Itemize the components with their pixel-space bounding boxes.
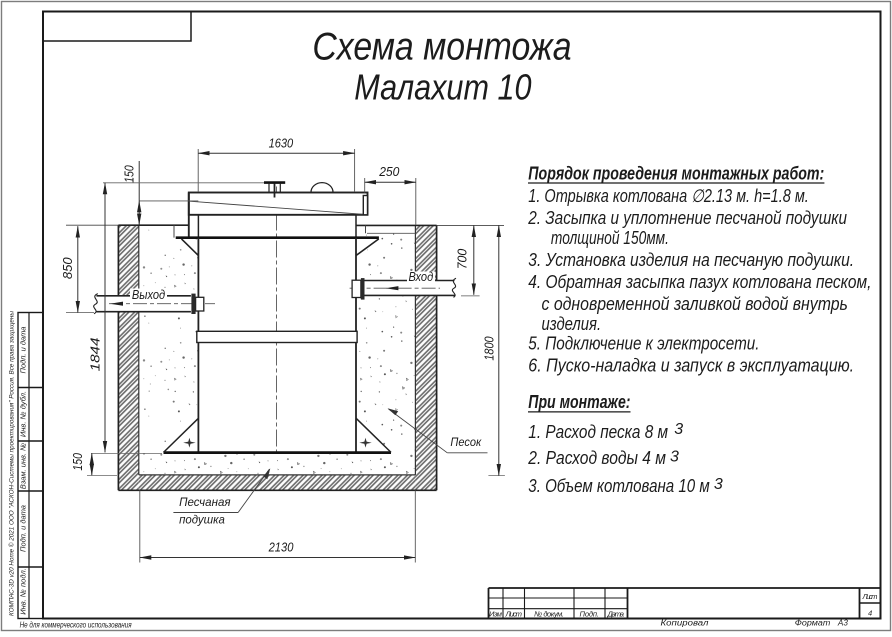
svg-text:5. Подключение к электросети.: 5. Подключение к электросети. (528, 334, 759, 354)
svg-text:6. Пуско-наладка и запуск в эк: 6. Пуско-наладка и запуск в эксплуатацию… (528, 355, 854, 375)
svg-text:Дата: Дата (607, 609, 625, 618)
svg-text:Инв. № подл.: Инв. № подл. (19, 568, 28, 615)
svg-text:Лист: Лист (505, 609, 523, 618)
svg-text:При монтаже:: При монтаже: (528, 392, 630, 412)
svg-text:1. Расход песка 8 м: 1. Расход песка 8 м (528, 422, 668, 442)
svg-text:4. Обратная засыпка пазух котл: 4. Обратная засыпка пазух котлована песк… (528, 272, 871, 292)
svg-text:Малахит 10: Малахит 10 (354, 67, 531, 108)
svg-text:3: 3 (714, 476, 723, 493)
svg-text:Вход: Вход (409, 270, 434, 284)
svg-text:3. Установка изделия на песчан: 3. Установка изделия на песчаную подушки… (528, 250, 854, 270)
svg-text:Песчаная: Песчаная (179, 495, 231, 509)
svg-text:4: 4 (868, 609, 872, 618)
svg-text:подушка: подушка (179, 512, 225, 526)
svg-text:изделия.: изделия. (542, 314, 602, 334)
svg-text:Порядок проведения монтажных р: Порядок проведения монтажных работ: (528, 164, 824, 184)
svg-text:150: 150 (123, 165, 137, 183)
svg-text:№ докум.: № докум. (534, 609, 564, 618)
svg-text:Схема монтожа: Схема монтожа (312, 26, 571, 69)
svg-text:Подп. и дата: Подп. и дата (19, 505, 28, 552)
svg-text:КОМПАС-3D v20 Home © 2021 ООО: КОМПАС-3D v20 Home © 2021 ООО "АСКОН-Сис… (8, 311, 16, 616)
svg-text:А3: А3 (837, 618, 848, 628)
svg-text:2130: 2130 (268, 541, 294, 555)
svg-text:850: 850 (61, 257, 75, 279)
svg-text:1. Отрывка котлована ∅2.13 м.: 1. Отрывка котлована ∅2.13 м. h=1.8 м. (528, 186, 809, 206)
svg-text:Формат: Формат (795, 618, 831, 628)
svg-text:2. Засыпка и уплотнение песчан: 2. Засыпка и уплотнение песчаной подушки (527, 208, 847, 228)
svg-text:Копировал: Копировал (661, 618, 709, 628)
svg-text:3: 3 (674, 421, 683, 438)
svg-text:1844: 1844 (89, 337, 103, 371)
svg-text:Песок: Песок (450, 435, 482, 449)
svg-text:150: 150 (71, 453, 85, 471)
svg-text:Лист: Лист (862, 592, 878, 601)
svg-text:с одновременной заливкой водой: с одновременной заливкой водой внутрь (542, 294, 848, 314)
svg-text:1800: 1800 (483, 336, 497, 360)
svg-text:Инв. № дубл.: Инв. № дубл. (19, 391, 28, 437)
svg-text:Взам. инв. №: Взам. инв. № (19, 443, 28, 489)
svg-text:3: 3 (670, 449, 679, 466)
svg-text:250: 250 (378, 165, 399, 179)
svg-text:700: 700 (456, 249, 470, 270)
svg-text:толщиной 150мм.: толщиной 150мм. (551, 228, 669, 248)
svg-text:Выход: Выход (132, 288, 165, 302)
svg-text:Изм: Изм (489, 609, 503, 618)
svg-text:Подп. и дата: Подп. и дата (19, 327, 28, 374)
svg-text:3. Объем котлована 10 м: 3. Объем котлована 10 м (528, 476, 709, 496)
svg-text:Не для коммерческого использов: Не для коммерческого использования (20, 620, 133, 629)
svg-text:Подп.: Подп. (580, 609, 600, 618)
svg-text:1630: 1630 (269, 137, 294, 151)
svg-text:2. Расход воды 4 м: 2. Расход воды 4 м (527, 448, 666, 468)
